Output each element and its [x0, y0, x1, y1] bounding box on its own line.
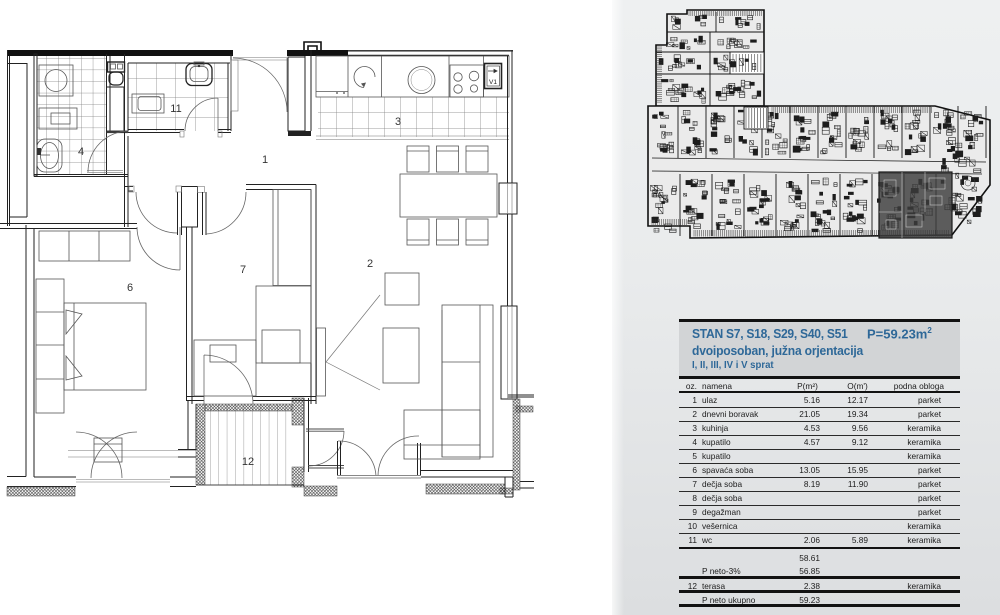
svg-text:12: 12 [242, 456, 254, 468]
svg-text:1: 1 [262, 154, 268, 166]
svg-text:11: 11 [170, 103, 181, 115]
svg-text:7: 7 [240, 264, 246, 276]
svg-text:6: 6 [127, 282, 133, 294]
svg-text:2: 2 [367, 258, 373, 270]
svg-text:4: 4 [78, 146, 84, 158]
svg-text:3: 3 [395, 116, 401, 128]
svg-text:V1: V1 [489, 79, 497, 86]
